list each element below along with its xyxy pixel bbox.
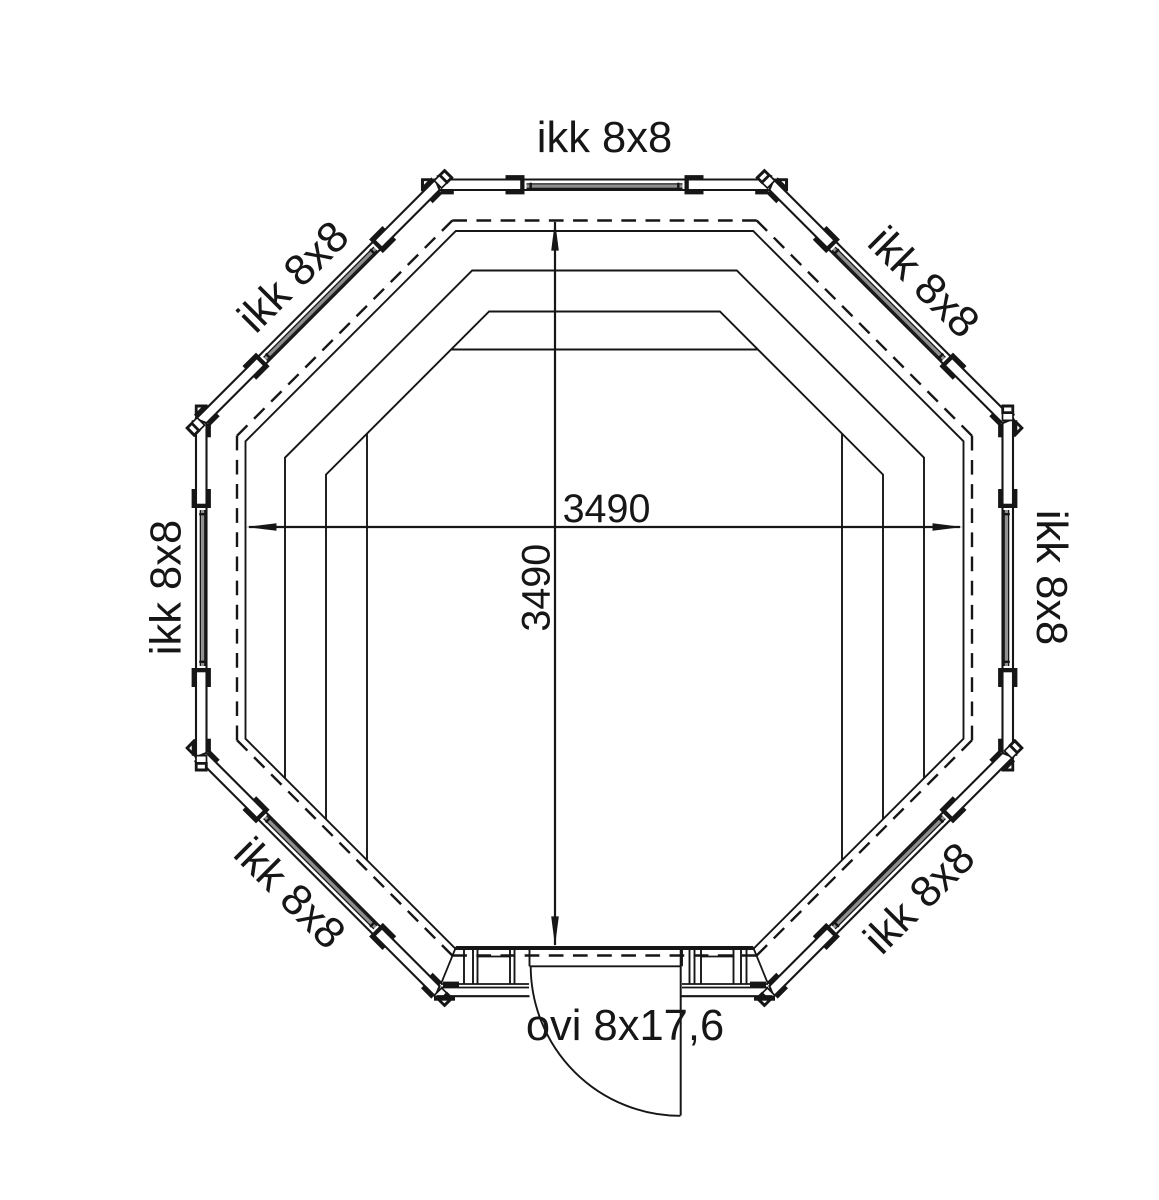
svg-text:3490: 3490 (515, 544, 559, 632)
svg-text:ikk 8x8: ikk 8x8 (1027, 510, 1075, 645)
svg-text:3490: 3490 (563, 487, 651, 531)
svg-text:ikk 8x8: ikk 8x8 (143, 520, 191, 655)
svg-text:ovi 8x17,6: ovi 8x17,6 (526, 1002, 724, 1050)
svg-text:ikk 8x8: ikk 8x8 (537, 114, 672, 162)
